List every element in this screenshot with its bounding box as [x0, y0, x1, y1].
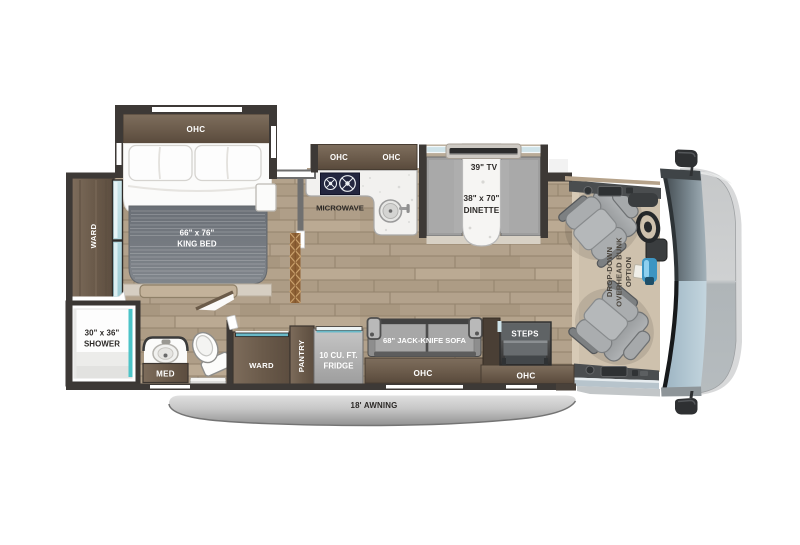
svg-text:68" JACK-KNIFE SOFA: 68" JACK-KNIFE SOFA — [383, 336, 466, 345]
svg-text:WARD: WARD — [249, 361, 274, 370]
svg-text:STEPS: STEPS — [511, 330, 539, 339]
svg-text:18' AWNING: 18' AWNING — [351, 401, 398, 410]
svg-text:DINETTE: DINETTE — [464, 206, 500, 215]
svg-text:MICROWAVE: MICROWAVE — [316, 204, 364, 213]
svg-text:SHOWER: SHOWER — [84, 340, 120, 349]
svg-text:66" x 76": 66" x 76" — [180, 229, 215, 238]
svg-text:WARD: WARD — [89, 224, 98, 249]
svg-text:FRIDGE: FRIDGE — [323, 362, 353, 371]
svg-text:MED: MED — [156, 370, 175, 379]
svg-text:OHC: OHC — [516, 372, 535, 381]
svg-text:OHC: OHC — [187, 125, 206, 134]
svg-text:OHC: OHC — [383, 153, 401, 162]
svg-text:10 CU. FT.: 10 CU. FT. — [319, 351, 357, 360]
svg-text:OPTION: OPTION — [624, 257, 633, 287]
svg-text:DROP-DOWN: DROP-DOWN — [605, 247, 614, 297]
svg-text:OHC: OHC — [330, 153, 348, 162]
svg-text:OVERHEAD BUNK: OVERHEAD BUNK — [615, 237, 624, 307]
svg-text:38" x 70": 38" x 70" — [464, 194, 500, 203]
svg-text:39" TV: 39" TV — [471, 163, 498, 172]
svg-text:PANTRY: PANTRY — [297, 340, 306, 373]
svg-text:OHC: OHC — [413, 369, 432, 378]
svg-text:30" x 36": 30" x 36" — [85, 329, 120, 338]
svg-text:KING BED: KING BED — [177, 240, 217, 249]
